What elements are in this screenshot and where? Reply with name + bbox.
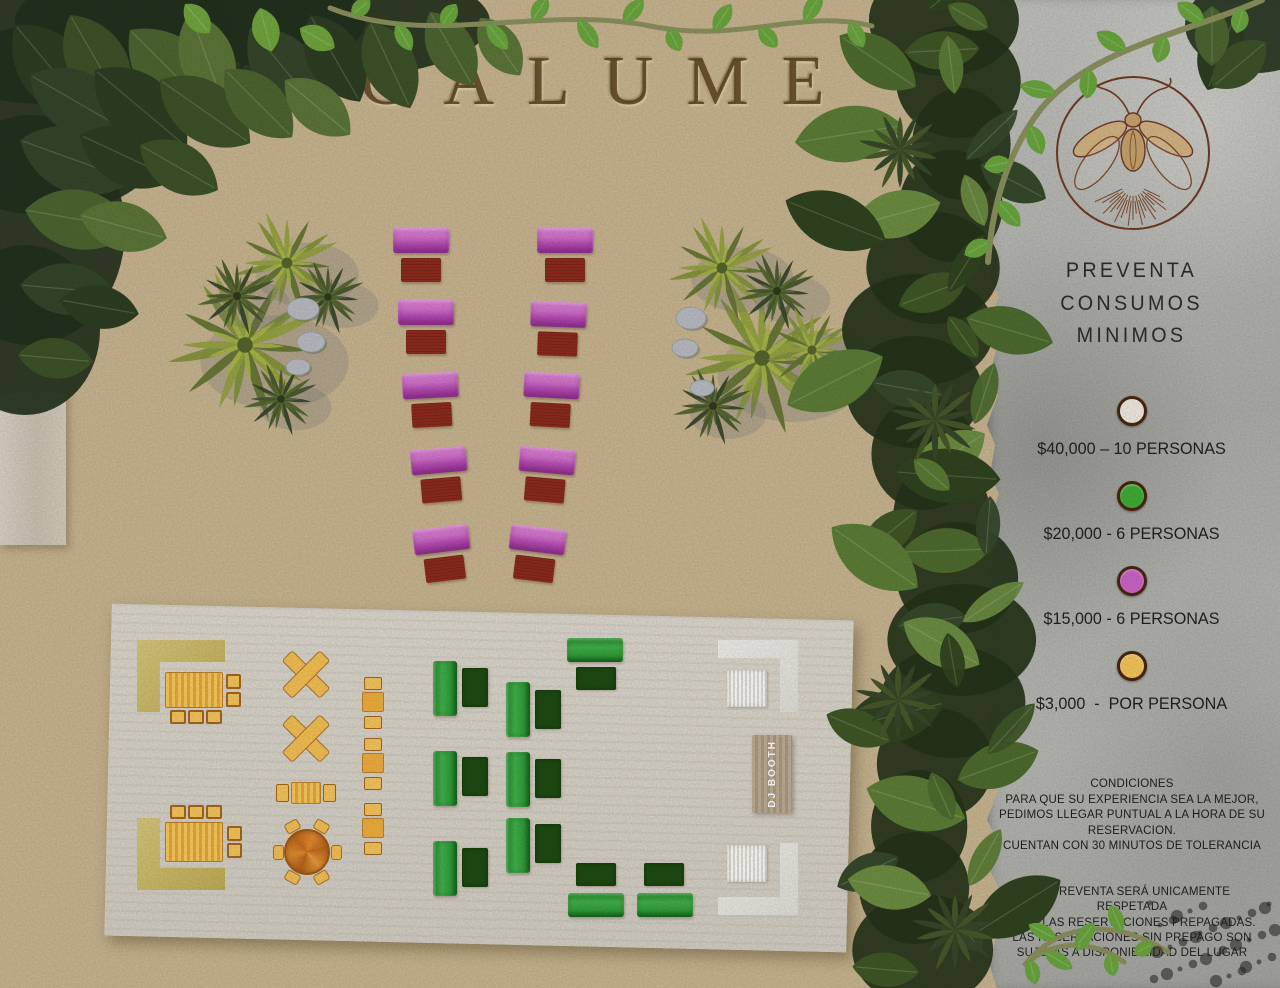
rock	[288, 361, 312, 377]
leaf	[18, 259, 117, 318]
legend-item-purple: $15,000 - 6 PERSONAS	[983, 566, 1280, 629]
round-table	[284, 829, 330, 875]
green-sofa	[506, 818, 530, 873]
legend-item-green: $20,000 - 6 PERSONAS	[983, 481, 1280, 544]
dark-green-table	[462, 848, 488, 887]
leaf	[943, 907, 991, 960]
leaf	[851, 950, 921, 988]
dark-green-table	[535, 690, 561, 729]
palm-tree	[197, 258, 290, 336]
dining-chair	[364, 842, 382, 855]
leaf	[893, 445, 1003, 506]
leaf	[435, 0, 463, 30]
x-table	[276, 709, 336, 769]
purple-sofa	[518, 446, 576, 476]
vip-table-group	[537, 228, 593, 282]
dining-chair	[206, 805, 222, 819]
fern	[854, 663, 937, 741]
legend-label: $40,000 – 10 PERSONAS	[990, 439, 1272, 459]
green-sofa	[433, 841, 457, 896]
leaf	[775, 175, 896, 267]
green-sofa	[506, 682, 530, 737]
leaf	[939, 309, 988, 365]
venue-title: VAGALUME	[202, 42, 862, 122]
dining-chair	[364, 777, 382, 790]
palm-tree	[668, 216, 794, 321]
fern	[858, 115, 937, 189]
dining-chair	[364, 677, 382, 690]
dark-green-table	[462, 757, 488, 796]
leaf	[797, 0, 828, 26]
dining-chair	[226, 692, 241, 707]
leaf	[128, 124, 230, 211]
leaf	[9, 110, 144, 212]
vip-table-group	[412, 524, 474, 584]
wood-dining-table	[165, 822, 223, 862]
leaf	[68, 109, 187, 205]
red-table	[406, 330, 446, 354]
leaf	[859, 763, 973, 843]
red-table	[424, 555, 467, 584]
green-sofa	[433, 661, 457, 716]
leaf	[74, 192, 174, 262]
leaf	[904, 29, 981, 71]
purple-sofa	[523, 372, 580, 400]
leaf	[837, 677, 951, 754]
leaf	[893, 603, 991, 684]
red-table	[420, 476, 462, 503]
purple-sofa	[410, 446, 468, 476]
vagalume-seating-map: VAGALUME DJ BOOTH PREVENTA CONSUMOS MINI…	[0, 0, 1280, 988]
square-table	[362, 818, 384, 838]
legend-label: $15,000 - 6 PERSONAS	[990, 609, 1272, 629]
rock	[289, 300, 321, 322]
red-table	[537, 331, 578, 356]
vine	[330, 8, 872, 31]
dining-chair	[364, 803, 382, 816]
white-table	[727, 845, 767, 882]
dining-chair	[188, 805, 204, 819]
conditions-text: CONDICIONES PARA QUE SU EXPERIENCIA SEA …	[997, 762, 1267, 977]
purple-sofa	[508, 524, 567, 556]
green-price-dot-icon	[1117, 481, 1147, 511]
dining-chair	[227, 826, 242, 841]
legend-item-white: $40,000 – 10 PERSONAS	[983, 396, 1280, 459]
purple-sofa	[393, 228, 449, 253]
dining-chair	[206, 710, 222, 724]
dark-green-table	[535, 759, 561, 798]
palm-tree	[243, 363, 332, 437]
dark-green-table	[535, 824, 561, 863]
leaf	[936, 34, 967, 95]
palm-tree	[290, 261, 379, 335]
palm-tree	[684, 283, 866, 434]
leaf	[847, 180, 947, 248]
leaf	[869, 364, 946, 413]
dining-chair	[364, 716, 382, 729]
leaf	[942, 0, 994, 38]
palm-tree	[167, 270, 349, 421]
dining-chair	[170, 805, 186, 819]
leaf	[346, 0, 375, 22]
leaf	[936, 631, 969, 690]
red-table	[411, 402, 452, 428]
green-sofa	[637, 893, 693, 917]
red-table	[545, 258, 585, 282]
palm-tree	[737, 253, 830, 331]
x-table	[276, 645, 336, 705]
leaf	[44, 0, 150, 125]
leaf	[953, 170, 995, 230]
dining-chair	[227, 843, 242, 858]
leaf	[707, 0, 738, 35]
wood-dining-table	[165, 672, 223, 708]
stone-slab	[0, 393, 66, 545]
leaf	[816, 505, 933, 609]
rock	[674, 341, 700, 359]
dining-chair	[188, 710, 204, 724]
red-table	[513, 555, 556, 584]
leaf	[74, 45, 208, 172]
leaf	[844, 858, 936, 917]
leaf	[617, 0, 649, 27]
legend-item-yellow: $3,000 - POR PERSONA	[983, 651, 1280, 714]
vip-table-group	[505, 524, 567, 584]
dj-booth-label: DJ BOOTH	[767, 740, 778, 808]
purple-sofa	[398, 300, 454, 325]
red-table	[401, 258, 441, 282]
leaf	[918, 0, 981, 21]
leaf	[938, 228, 994, 298]
legend-label: $20,000 - 6 PERSONAS	[990, 524, 1272, 544]
dark-green-table	[576, 863, 616, 886]
palm-tree	[766, 306, 873, 395]
purple-sofa	[402, 372, 459, 400]
firefly-logo-icon	[983, 16, 1280, 248]
green-sofa	[433, 751, 457, 806]
fern	[889, 381, 976, 462]
leaf	[920, 768, 963, 825]
red-table	[524, 476, 566, 503]
square-table	[362, 753, 384, 773]
purple-sofa	[412, 524, 471, 556]
leaf	[898, 414, 997, 501]
leaf	[56, 279, 142, 335]
price-legend: $40,000 – 10 PERSONAS $20,000 - 6 PERSON…	[983, 396, 1280, 736]
leaf	[775, 332, 895, 429]
leaf	[16, 335, 94, 382]
round-table-seat	[273, 845, 284, 860]
info-panel: PREVENTA CONSUMOS MINIMOS $40,000 – 10 P…	[983, 0, 1280, 988]
fern	[911, 893, 994, 971]
dining-chair	[226, 674, 241, 689]
vip-table-group	[516, 446, 576, 505]
dark-green-table	[644, 863, 684, 886]
leaf	[20, 181, 139, 259]
palm-tree	[233, 211, 359, 316]
purple-sofa	[530, 301, 587, 328]
vip-table-group	[398, 300, 454, 354]
vip-table-group	[529, 301, 587, 357]
green-sofa	[506, 752, 530, 807]
purple-price-dot-icon	[1117, 566, 1147, 596]
green-sofa	[567, 638, 623, 662]
rock	[692, 382, 716, 398]
palm-tree	[673, 368, 766, 446]
leaf	[892, 262, 973, 323]
white-table	[727, 670, 767, 707]
dark-green-table	[462, 668, 488, 707]
leaf	[850, 496, 928, 569]
dining-chair	[170, 710, 186, 724]
vip-table-group	[393, 228, 449, 282]
white-price-dot-icon	[1117, 396, 1147, 426]
leaf	[906, 450, 957, 499]
panel-heading: PREVENTA CONSUMOS MINIMOS	[992, 255, 1271, 353]
conditions-block-2: LA PREVENTA SERÁ UNICAMENTE RESPETADA PA…	[997, 885, 1267, 962]
leaf	[0, 4, 117, 138]
conditions-block-1: CONDICIONES PARA QUE SU EXPERIENCIA SEA …	[997, 777, 1267, 854]
green-sofa	[568, 893, 624, 917]
dark-green-table	[576, 667, 616, 690]
square-table	[362, 692, 384, 712]
red-table	[530, 402, 571, 428]
rock	[678, 309, 708, 331]
rock	[299, 334, 327, 354]
dining-chair	[276, 784, 289, 802]
leaf	[894, 599, 968, 644]
vip-table-group	[410, 446, 470, 505]
vip-table-group	[402, 372, 461, 429]
leaf	[526, 0, 555, 25]
leaf	[960, 234, 994, 263]
round-table-seat	[331, 845, 342, 860]
yellow-price-dot-icon	[1117, 651, 1147, 681]
leaf	[901, 527, 991, 575]
dining-chair	[323, 784, 336, 802]
dj-booth: DJ BOOTH	[752, 735, 792, 813]
leaf	[14, 48, 145, 159]
leaf	[176, 0, 218, 40]
purple-sofa	[537, 228, 593, 253]
small-table	[291, 782, 321, 804]
dining-chair	[364, 738, 382, 751]
legend-label: $3,000 - POR PERSONA	[990, 694, 1272, 714]
vip-table-group	[522, 372, 581, 429]
